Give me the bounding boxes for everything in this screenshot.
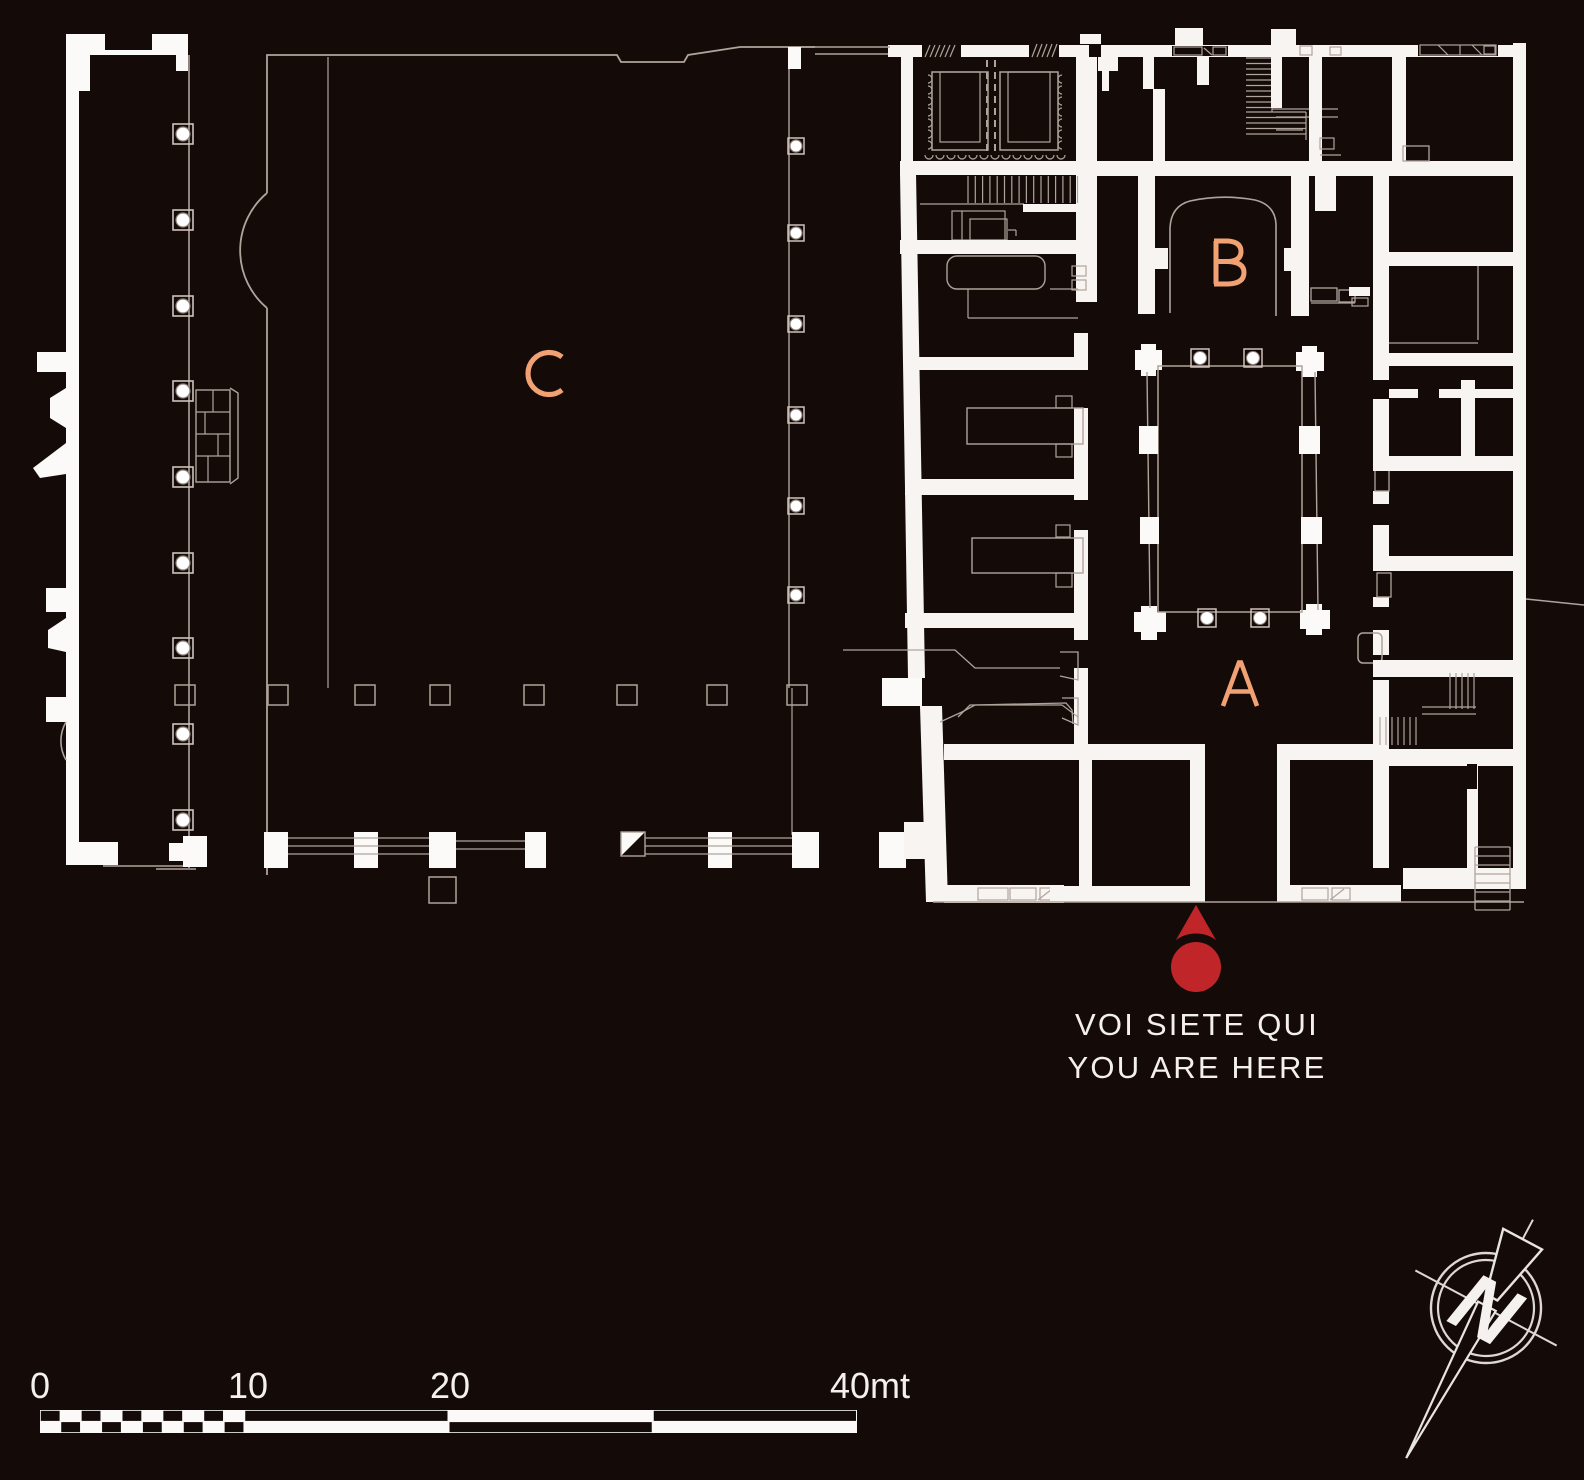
svg-text:0: 0 <box>30 1365 50 1406</box>
svg-text:40mt: 40mt <box>830 1365 910 1406</box>
svg-text:YOU ARE HERE: YOU ARE HERE <box>1068 1050 1327 1085</box>
svg-text:10: 10 <box>228 1365 268 1406</box>
svg-text:VOI SIETE QUI: VOI SIETE QUI <box>1075 1007 1319 1042</box>
svg-text:20: 20 <box>430 1365 470 1406</box>
